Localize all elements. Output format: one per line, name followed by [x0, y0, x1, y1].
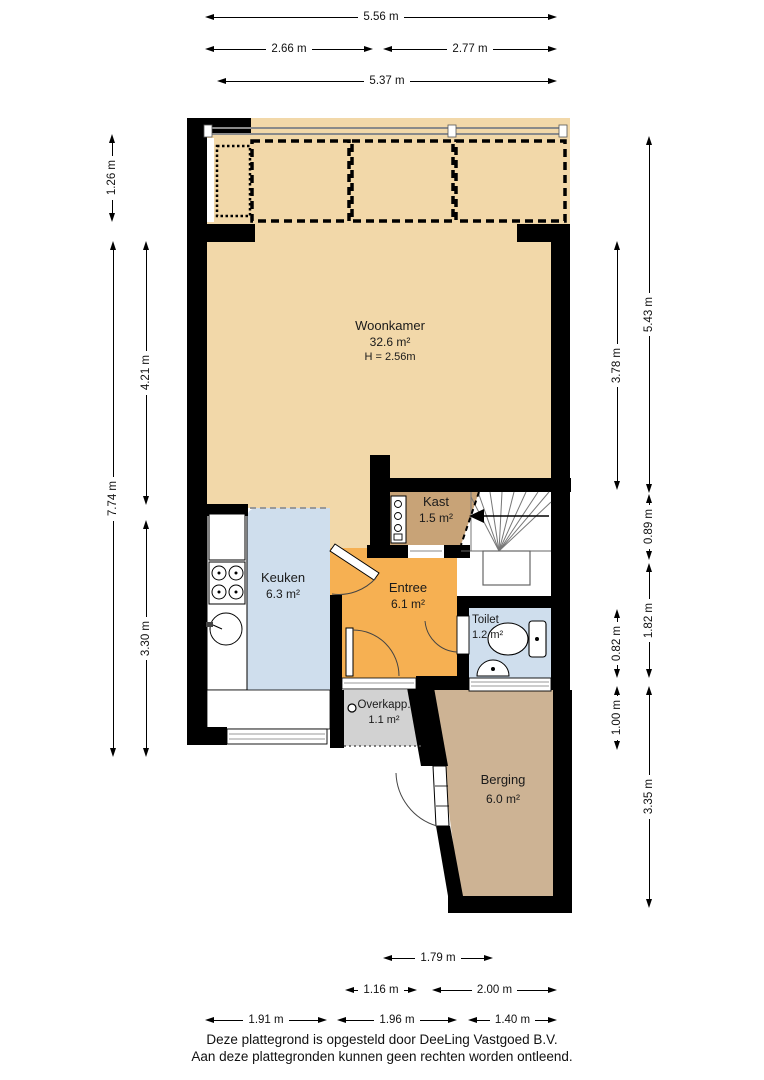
room-keuken — [247, 508, 330, 690]
arrow-up-icon — [646, 136, 652, 145]
dimension-right-overkapping: 1.00 m — [610, 686, 624, 750]
footer-line-1: Deze plattegrond is opgesteld door DeeLi… — [0, 1032, 764, 1049]
dimension-value: 0.89 m — [643, 505, 655, 548]
arrow-down-icon — [614, 669, 620, 678]
arrow-up-icon — [110, 241, 116, 250]
arrow-right-icon — [548, 78, 557, 84]
dimension-value: 1.00 m — [611, 696, 623, 739]
arrow-down-icon — [646, 899, 652, 908]
door-berging — [396, 766, 449, 826]
boiler-icon — [391, 496, 406, 543]
dimension-value: 1.96 m — [374, 1014, 419, 1026]
arrow-up-icon — [143, 241, 149, 250]
dimension-right-kast: 0.89 m — [642, 494, 656, 560]
dimension-bottom-middle-part: 1.96 m — [337, 1013, 457, 1027]
dimension-left-balcony: 1.26 m — [105, 134, 119, 222]
arrow-left-icon — [345, 987, 354, 993]
footer-line-2: Aan deze plattegronden kunnen geen recht… — [0, 1049, 764, 1066]
dimension-value: 2.66 m — [266, 43, 311, 55]
dimension-value: 3.30 m — [140, 617, 152, 660]
dimension-value: 0.82 m — [611, 622, 623, 665]
arrow-left-icon — [337, 1017, 346, 1023]
utility-strip — [207, 690, 330, 729]
footer-disclaimer: Deze plattegrond is opgesteld door DeeLi… — [0, 1032, 764, 1066]
arrow-down-icon — [143, 748, 149, 757]
arrow-up-icon — [143, 520, 149, 529]
arrow-right-icon — [548, 14, 557, 20]
dimension-right-upper-total: 5.43 m — [642, 136, 656, 493]
arrow-right-icon — [364, 46, 373, 52]
dimension-value: 1.40 m — [490, 1014, 535, 1026]
dimension-top-left-part: 2.66 m — [205, 42, 373, 56]
dimension-bottom-berging-outer: 2.00 m — [432, 983, 557, 997]
dimension-value: 1.16 m — [358, 984, 403, 996]
dimension-value: 3.35 m — [643, 775, 655, 818]
kast-door-sill — [408, 545, 444, 558]
arrow-right-icon — [318, 1017, 327, 1023]
dimension-top-inner: 5.37 m — [217, 74, 557, 88]
arrow-right-icon — [548, 987, 557, 993]
arrow-up-icon — [614, 241, 620, 250]
arrow-down-icon — [646, 484, 652, 493]
dimension-value: 5.56 m — [358, 11, 403, 23]
arrow-down-icon — [110, 748, 116, 757]
railing-post — [448, 125, 456, 137]
arrow-right-icon — [484, 955, 493, 961]
arrow-right-icon — [448, 1017, 457, 1023]
dimension-value: 5.43 m — [643, 293, 655, 336]
dimension-value: 7.74 m — [107, 477, 119, 520]
wall-face — [207, 138, 214, 222]
toilet-icon — [488, 621, 546, 657]
dimension-left-woonkamer: 4.21 m — [139, 241, 153, 505]
dimension-right-hal: 1.82 m — [642, 563, 656, 678]
dimension-left-keuken: 3.30 m — [139, 520, 153, 757]
dimension-value: 1.79 m — [415, 952, 460, 964]
arrow-down-icon — [646, 669, 652, 678]
dimension-bottom-berging-width: 1.79 m — [383, 951, 493, 965]
arrow-down-icon — [143, 496, 149, 505]
dimension-bottom-overkapping-width: 1.16 m — [345, 983, 417, 997]
arrow-down-icon — [109, 213, 115, 222]
arrow-left-icon — [205, 1017, 214, 1023]
stove-icon — [209, 562, 245, 604]
dimension-value: 2.00 m — [472, 984, 517, 996]
arrow-up-icon — [646, 563, 652, 572]
railing-post — [204, 125, 212, 137]
arrow-up-icon — [646, 686, 652, 695]
arrow-left-icon — [468, 1017, 477, 1023]
dimension-left-total: 7.74 m — [106, 241, 120, 757]
arrow-up-icon — [646, 494, 652, 503]
arrow-up-icon — [109, 134, 115, 143]
arrow-left-icon — [205, 14, 214, 20]
arrow-up-icon — [614, 686, 620, 695]
railing-post — [559, 125, 567, 137]
arrow-right-icon — [548, 46, 557, 52]
dimension-top-total: 5.56 m — [205, 10, 557, 24]
dimension-right-berging: 3.35 m — [642, 686, 656, 908]
kitchen-cabinet — [209, 514, 245, 560]
dimension-value: 1.26 m — [106, 156, 118, 199]
arrow-down-icon — [646, 551, 652, 560]
arrow-up-icon — [614, 609, 620, 618]
drain-point-icon — [348, 704, 356, 712]
arrow-left-icon — [383, 46, 392, 52]
arrow-right-icon — [408, 987, 417, 993]
dimension-right-woonkamer: 3.78 m — [610, 241, 624, 490]
arrow-left-icon — [217, 78, 226, 84]
arrow-left-icon — [205, 46, 214, 52]
dimension-bottom-right-part: 1.40 m — [468, 1013, 557, 1027]
arrow-down-icon — [614, 741, 620, 750]
floor-plan: Woonkamer 32.6 m² H = 2.56m Kast 1.5 m² … — [0, 0, 764, 1080]
dimension-value: 1.82 m — [643, 599, 655, 642]
dimension-value: 5.37 m — [364, 75, 409, 87]
dimension-right-toilet: 0.82 m — [610, 609, 624, 678]
dimension-bottom-left-part: 1.91 m — [205, 1013, 327, 1027]
dimension-top-right-part: 2.77 m — [383, 42, 557, 56]
arrow-right-icon — [548, 1017, 557, 1023]
toilet-window — [469, 678, 551, 691]
dimension-value: 2.77 m — [447, 43, 492, 55]
dimension-value: 3.78 m — [611, 344, 623, 387]
dimension-value: 1.91 m — [243, 1014, 288, 1026]
arrow-left-icon — [432, 987, 441, 993]
dimension-value: 4.21 m — [140, 351, 152, 394]
entree-threshold — [342, 678, 416, 689]
arrow-down-icon — [614, 481, 620, 490]
keuken-window — [227, 729, 327, 744]
arrow-left-icon — [383, 955, 392, 961]
